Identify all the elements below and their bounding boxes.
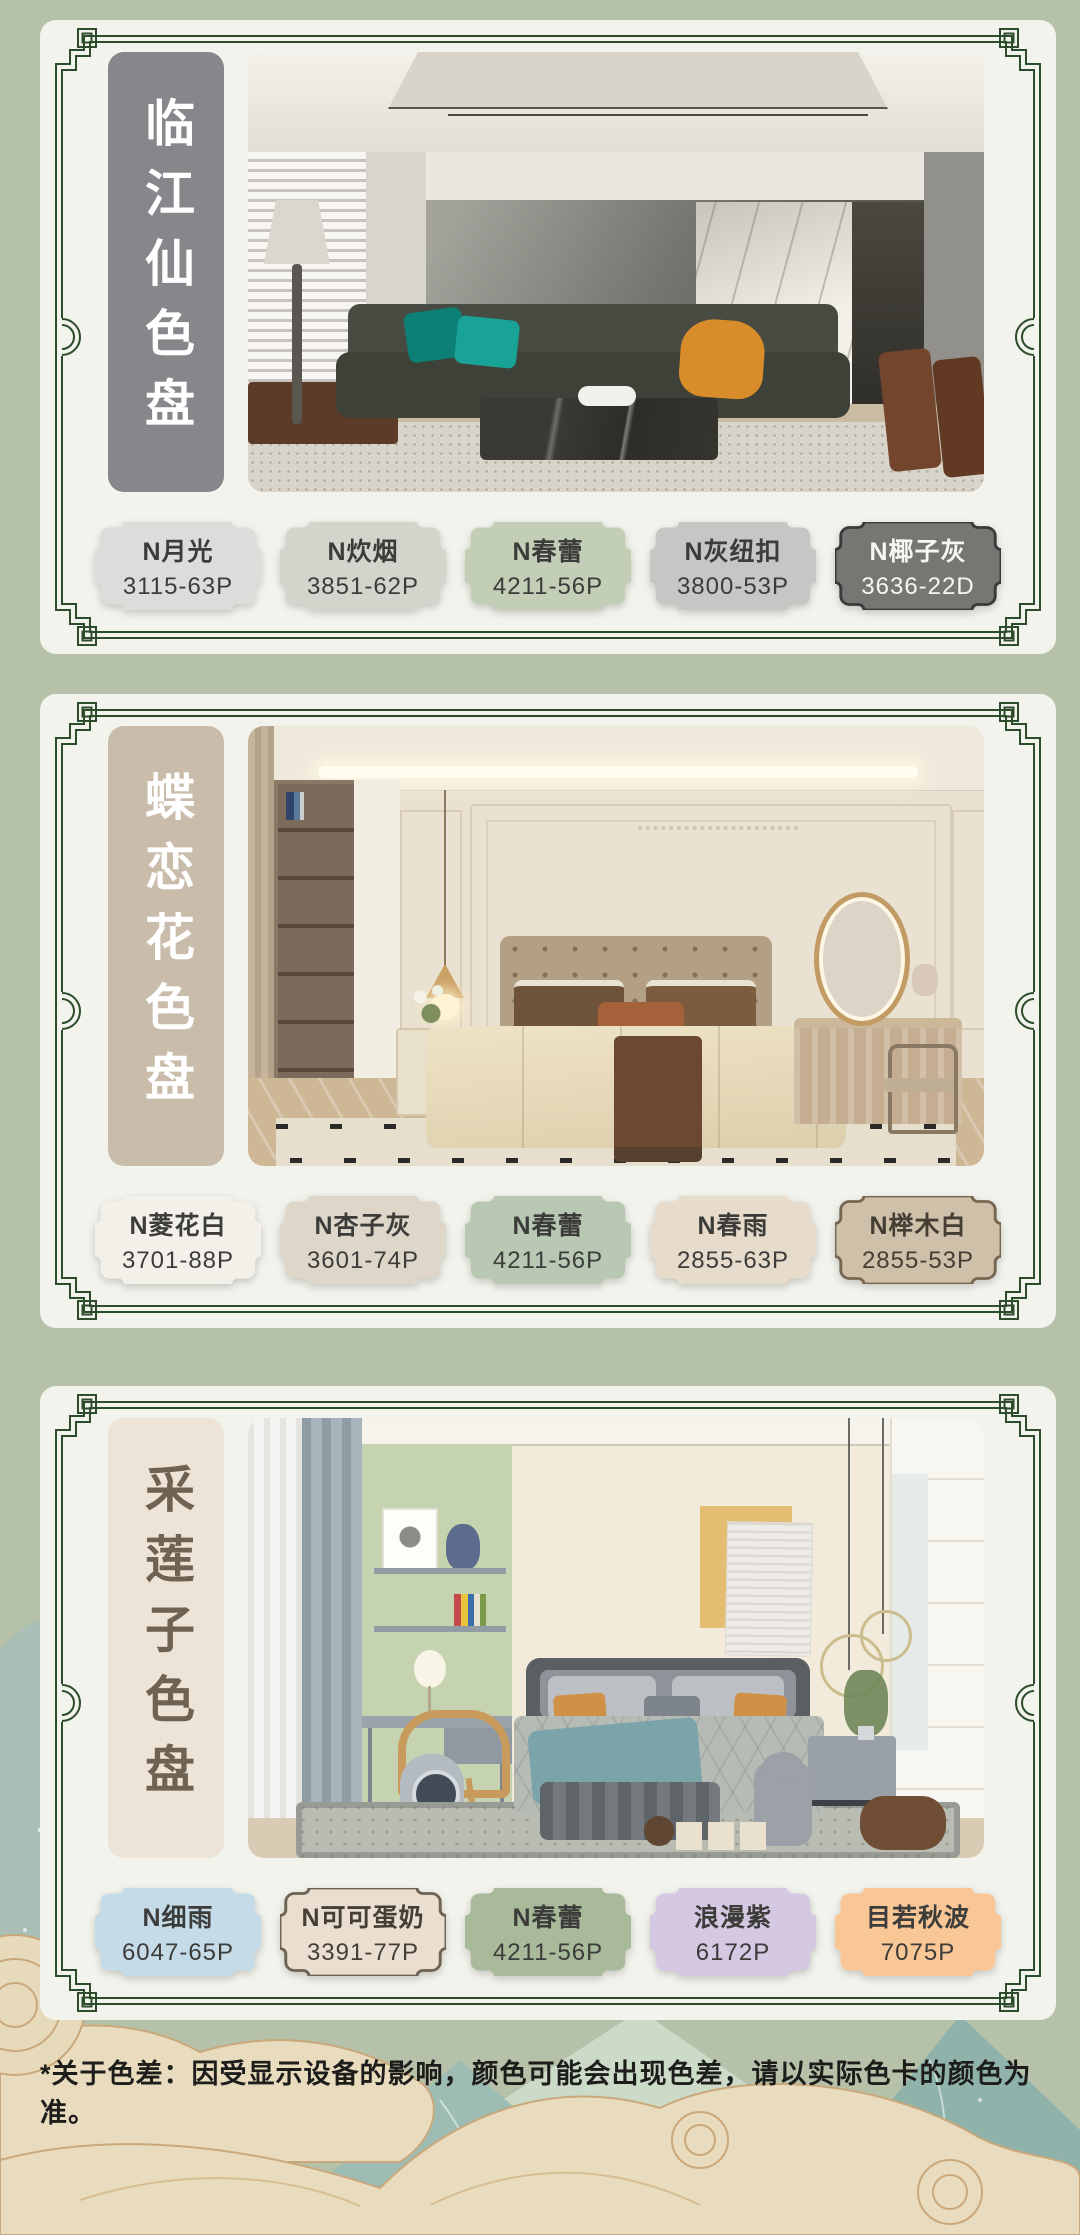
palette-card-dielianhua: 蝶恋花色盘 bbox=[40, 694, 1056, 1328]
photo-cove-light bbox=[318, 766, 918, 778]
photo-curtain bbox=[302, 1418, 362, 1850]
swatch-code: 3636-22D bbox=[861, 573, 974, 601]
photo-shelf bbox=[374, 1568, 506, 1574]
photo-art-frame bbox=[382, 1508, 438, 1572]
photo-pendant-wire-2 bbox=[882, 1418, 884, 1634]
color-swatch: 目若秋波7075P bbox=[835, 1888, 1001, 1976]
swatch-code: 3115-63P bbox=[123, 573, 233, 601]
photo-plush-bunny bbox=[446, 1524, 480, 1570]
photo-wall-white-top bbox=[426, 152, 926, 200]
photo-floor-lamp-pole bbox=[292, 264, 302, 424]
photo-kaws-head bbox=[762, 1752, 804, 1784]
swatch-code: 3800-53P bbox=[677, 573, 789, 601]
swatch-name: N椰子灰 bbox=[869, 532, 966, 568]
swatch-name: N杏子灰 bbox=[314, 1206, 411, 1242]
living-room-photo bbox=[248, 52, 984, 492]
photo-sheer-curtain bbox=[248, 1418, 302, 1858]
swatch-name: N月光 bbox=[142, 532, 213, 568]
palette-title: 临江仙色盘 bbox=[141, 97, 191, 447]
kids-bedroom-photo bbox=[248, 1418, 984, 1858]
palette-title-banner: 采莲子色盘 bbox=[108, 1418, 224, 1858]
swatch-name: N菱花白 bbox=[129, 1206, 226, 1242]
photo-ring-light-2 bbox=[860, 1610, 912, 1662]
palette-card-cailianzi: 采莲子色盘 bbox=[40, 1386, 1056, 2020]
photo-toy-blocks bbox=[676, 1822, 766, 1850]
swatch-name: 浪漫紫 bbox=[694, 1898, 772, 1934]
photo-desk-lamp bbox=[414, 1650, 446, 1688]
photo-books bbox=[454, 1594, 498, 1626]
palette-title-banner: 临江仙色盘 bbox=[108, 52, 224, 492]
photo-plaster-flourish bbox=[638, 826, 798, 830]
swatch-name: N春蕾 bbox=[512, 1898, 583, 1934]
photo-table-tray bbox=[578, 386, 636, 406]
color-swatch-highlighted: N可可蛋奶3391-77P bbox=[280, 1888, 446, 1976]
photo-ceiling-line bbox=[448, 114, 868, 116]
photo-teddy-bear bbox=[860, 1796, 946, 1850]
color-swatch: N菱花白3701-88P bbox=[95, 1196, 261, 1284]
swatch-name: N灰纽扣 bbox=[684, 532, 781, 568]
photo-bookshelf bbox=[274, 780, 362, 1088]
swatch-name: N炊烟 bbox=[327, 532, 398, 568]
swatch-code: 4211-56P bbox=[493, 573, 603, 601]
photo-pendant-wire bbox=[444, 790, 446, 966]
swatch-code: 4211-56P bbox=[493, 1939, 603, 1967]
paint-palette-poster: 临江仙色盘 bbox=[0, 0, 1080, 2235]
swatch-name: N可可蛋奶 bbox=[301, 1898, 424, 1934]
photo-coffee-table bbox=[480, 398, 718, 460]
palette-title: 蝶恋花色盘 bbox=[141, 771, 191, 1121]
swatch-code: 7075P bbox=[881, 1939, 955, 1967]
photo-flowers bbox=[404, 976, 458, 1028]
palette-card-linjiangxian: 临江仙色盘 bbox=[40, 20, 1056, 654]
color-swatch: N月光3115-63P bbox=[95, 522, 261, 610]
photo-ball-toy bbox=[644, 1816, 674, 1846]
color-swatch: N炊烟3851-62P bbox=[280, 522, 446, 610]
photo-white-panel bbox=[725, 1521, 813, 1656]
photo-orange-throw bbox=[677, 317, 766, 401]
swatch-code: 6047-65P bbox=[122, 1939, 234, 1967]
photo-teal-pillow-2 bbox=[454, 315, 521, 369]
photo-bunny-figurine bbox=[912, 964, 938, 996]
photo-books bbox=[286, 792, 326, 820]
photo-shelf-2 bbox=[374, 1626, 506, 1632]
photo-ceiling-beam bbox=[388, 52, 888, 109]
swatch-name: N榉木白 bbox=[869, 1206, 966, 1242]
swatch-code: 2855-53P bbox=[862, 1247, 974, 1275]
swatch-name: N细雨 bbox=[142, 1898, 213, 1934]
swatch-code: 3701-88P bbox=[122, 1247, 234, 1275]
swatch-row: N菱花白3701-88P N杏子灰3601-74P N春蕾4211-56P N春… bbox=[95, 1196, 1001, 1284]
color-swatch: N灰纽扣3800-53P bbox=[650, 522, 816, 610]
swatch-row: N细雨6047-65P N可可蛋奶3391-77P N春蕾4211-56P 浪漫… bbox=[95, 1888, 1001, 1976]
photo-curtain bbox=[248, 726, 274, 1126]
photo-wall-panel-right bbox=[952, 810, 984, 1030]
swatch-code: 3391-77P bbox=[307, 1939, 419, 1967]
color-swatch: N春蕾4211-56P bbox=[465, 1196, 631, 1284]
photo-pendant-wire bbox=[848, 1418, 850, 1670]
swatch-code: 6172P bbox=[696, 1939, 770, 1967]
swatch-code: 2855-63P bbox=[677, 1247, 789, 1275]
swatch-code: 4211-56P bbox=[493, 1247, 603, 1275]
photo-chair-seat bbox=[884, 1078, 954, 1092]
swatch-name: N春雨 bbox=[697, 1206, 768, 1242]
photo-oval-mirror bbox=[814, 892, 910, 1026]
swatch-name: N春蕾 bbox=[512, 1206, 583, 1242]
color-swatch: N春雨2855-63P bbox=[650, 1196, 816, 1284]
color-swatch-highlighted: N椰子灰3636-22D bbox=[835, 522, 1001, 610]
swatch-code: 3851-62P bbox=[307, 573, 419, 601]
cream-bedroom-photo bbox=[248, 726, 984, 1166]
color-swatch: 浪漫紫6172P bbox=[650, 1888, 816, 1976]
photo-vase bbox=[858, 1726, 874, 1740]
photo-column bbox=[354, 780, 400, 1126]
color-swatch: N杏子灰3601-74P bbox=[280, 1196, 446, 1284]
color-difference-disclaimer: *关于色差：因受显示设备的影响，颜色可能会出现色差，请以实际色卡的颜色为准。 bbox=[40, 2052, 1080, 2130]
swatch-name: 目若秋波 bbox=[866, 1898, 970, 1934]
palette-title-banner: 蝶恋花色盘 bbox=[108, 726, 224, 1166]
swatch-row: N月光3115-63P N炊烟3851-62P N春蕾4211-56P N灰纽扣… bbox=[95, 522, 1001, 610]
color-swatch-highlighted: N榉木白2855-53P bbox=[835, 1196, 1001, 1284]
palette-title: 采莲子色盘 bbox=[141, 1463, 191, 1813]
color-swatch: N春蕾4211-56P bbox=[465, 1888, 631, 1976]
photo-brown-throw bbox=[614, 1036, 702, 1162]
swatch-name: N春蕾 bbox=[512, 532, 583, 568]
swatch-code: 3601-74P bbox=[307, 1247, 419, 1275]
color-swatch: N春蕾4211-56P bbox=[465, 522, 631, 610]
color-swatch: N细雨6047-65P bbox=[95, 1888, 261, 1976]
